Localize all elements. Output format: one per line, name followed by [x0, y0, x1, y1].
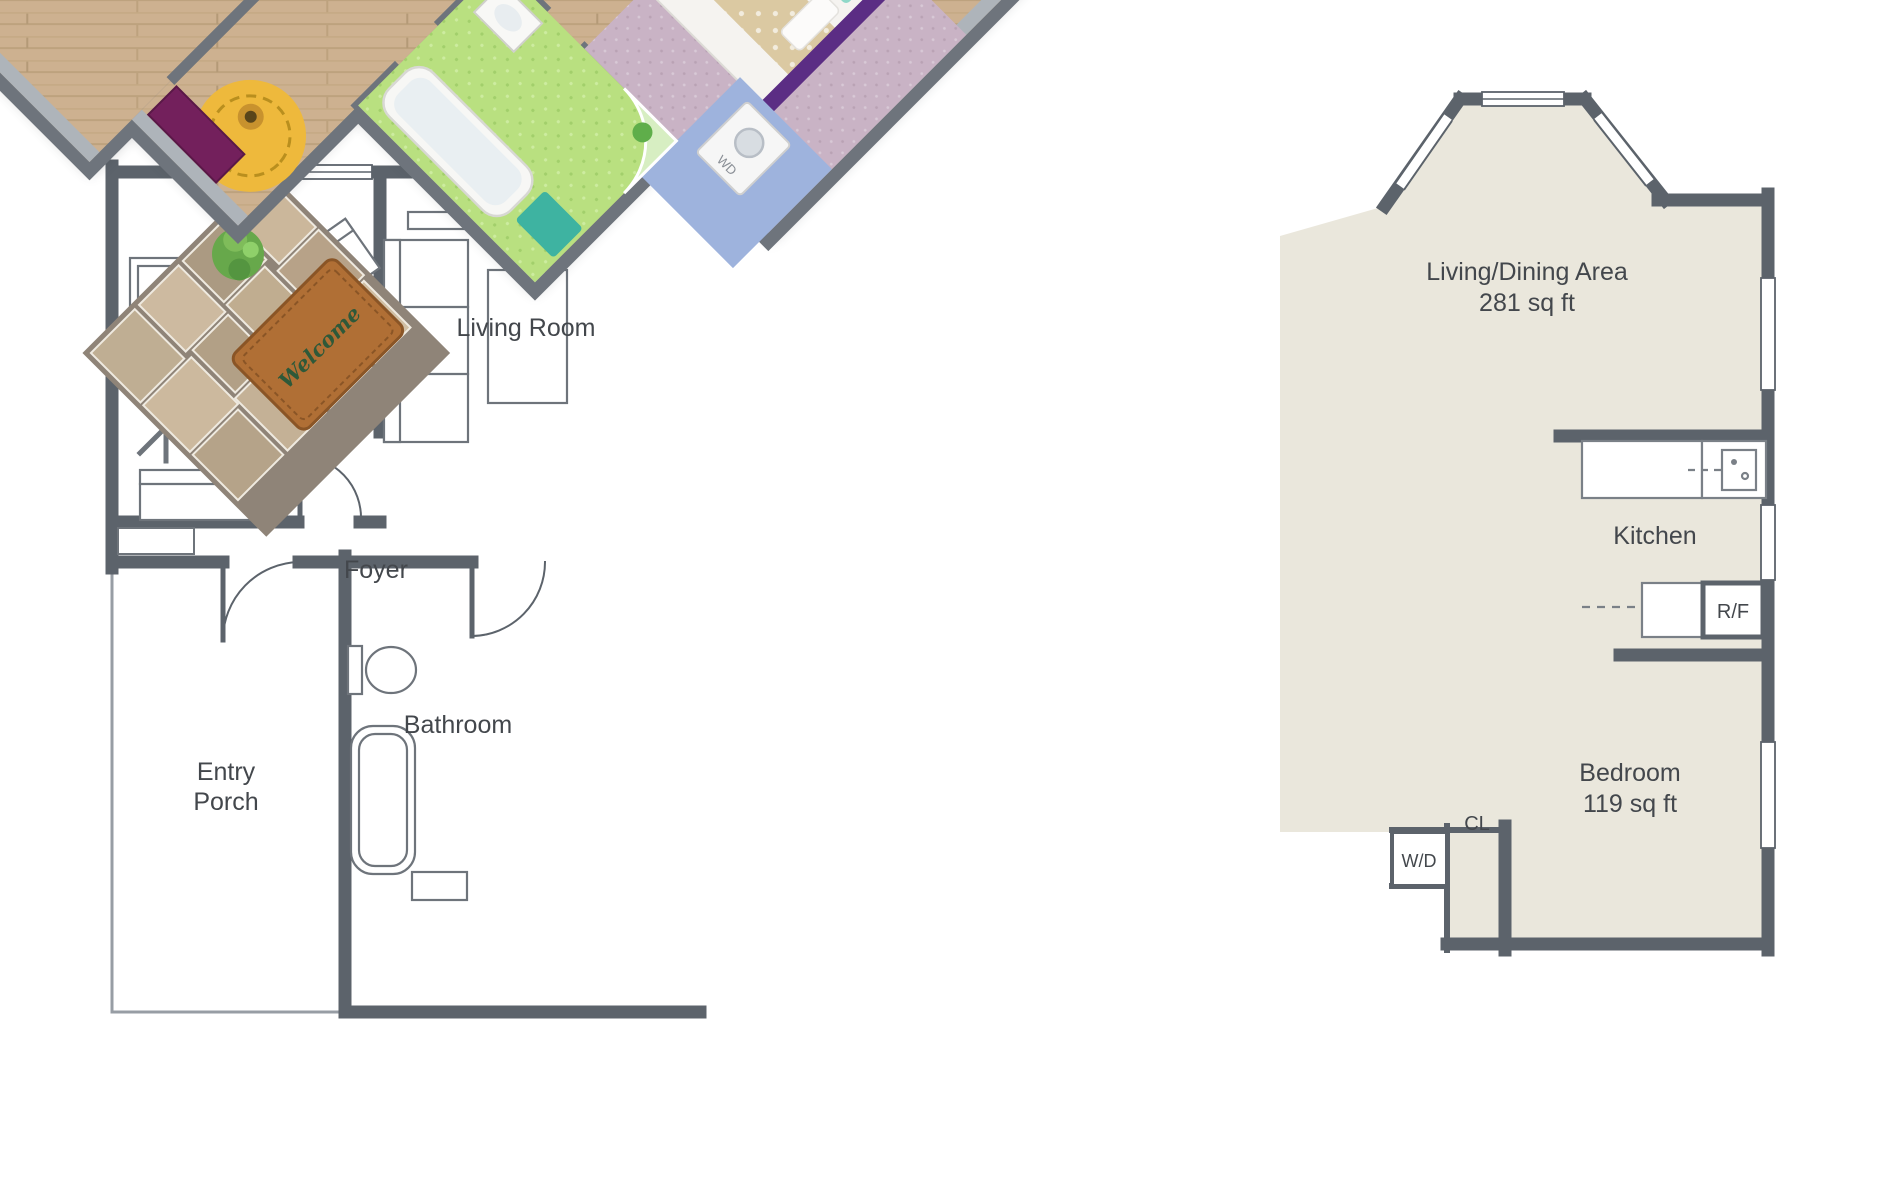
label-foyer: Foyer — [344, 556, 408, 584]
foyer-closet-2d — [118, 528, 194, 554]
floorplan-image: Nursery Living Room Foyer Bathroom Entry… — [0, 0, 1900, 1180]
floorplan-svg: Nursery Living Room Foyer Bathroom Entry… — [0, 0, 1900, 1180]
label-porch: Porch — [193, 788, 258, 816]
label-living-dining: Living/Dining Area — [1426, 258, 1628, 286]
plan2d-left: Nursery Living Room Foyer Bathroom Entry… — [112, 88, 742, 1012]
label-living-dining-area: 281 sq ft — [1479, 289, 1575, 317]
toilet-tank-2d — [348, 646, 362, 694]
toilet-2d — [366, 647, 416, 693]
label-wd: W/D — [1402, 851, 1437, 871]
label-entry: Entry — [197, 758, 256, 786]
label-bedroom-area: 119 sq ft — [1583, 790, 1677, 818]
label-living-room: Living Room — [457, 314, 596, 342]
lower-counter-2d — [1642, 583, 1703, 637]
label-kitchen: Kitchen — [1613, 522, 1696, 550]
label-bedroom: Bedroom — [1579, 759, 1680, 787]
label-rf: R/F — [1717, 601, 1749, 623]
kitchen-counter-2d — [1582, 441, 1702, 498]
label-cl: CL — [1464, 813, 1490, 835]
plan2d-right: Living/Dining Area 281 sq ft Kitchen R/F… — [1280, 92, 1775, 950]
sink-cabinet-2d — [412, 872, 467, 900]
label-bathroom: Bathroom — [404, 711, 512, 739]
